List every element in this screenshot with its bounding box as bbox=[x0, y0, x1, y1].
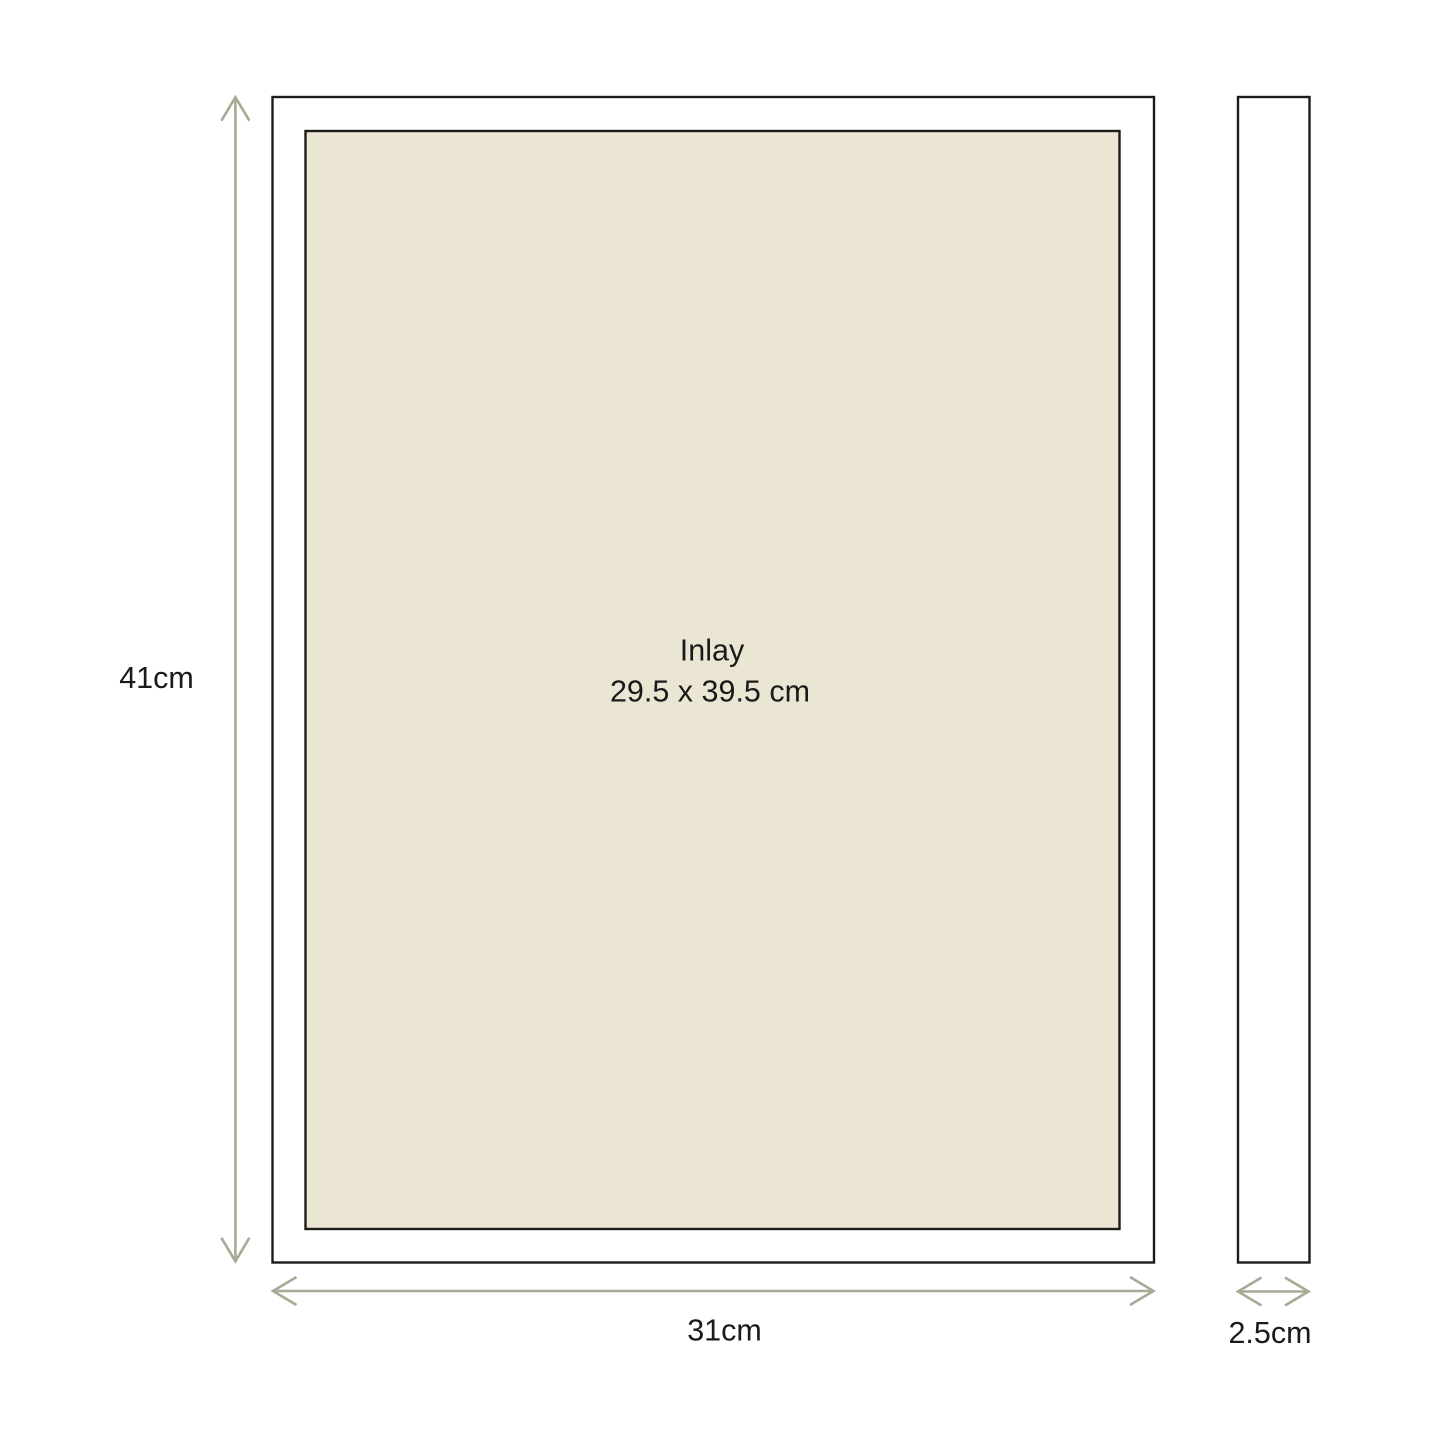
svg-text:29.5 x 39.5 cm: 29.5 x 39.5 cm bbox=[610, 675, 810, 709]
svg-text:Inlay: Inlay bbox=[680, 634, 745, 668]
svg-text:2.5cm: 2.5cm bbox=[1228, 1316, 1311, 1350]
svg-text:41cm: 41cm bbox=[119, 661, 194, 695]
svg-text:31cm: 31cm bbox=[687, 1314, 762, 1348]
